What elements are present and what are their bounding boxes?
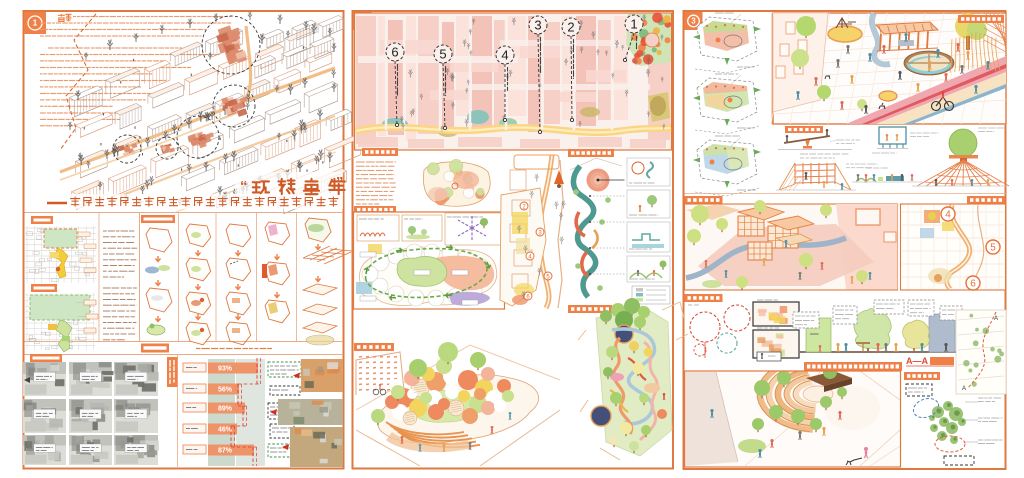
svg-text:3: 3 <box>534 18 541 33</box>
svg-text:89%: 89% <box>218 406 233 413</box>
svg-text:5: 5 <box>439 47 446 62</box>
svg-text:4: 4 <box>501 48 508 63</box>
svg-text:4: 4 <box>945 210 951 221</box>
svg-text:87%: 87% <box>218 448 233 455</box>
svg-text:6: 6 <box>391 45 398 60</box>
svg-text:6: 6 <box>970 279 976 290</box>
svg-text:”: ” <box>336 174 344 191</box>
svg-text:3: 3 <box>691 17 696 26</box>
svg-text:56%: 56% <box>218 387 233 394</box>
svg-text:“: “ <box>240 178 248 195</box>
svg-text:2: 2 <box>567 20 574 35</box>
svg-text:A: A <box>994 316 998 322</box>
svg-text:1: 1 <box>630 17 637 32</box>
svg-text:93%: 93% <box>218 366 233 373</box>
svg-text:A: A <box>962 386 966 392</box>
svg-text:A—A: A—A <box>906 356 928 366</box>
svg-text:5: 5 <box>990 243 996 254</box>
svg-text:1: 1 <box>33 19 38 28</box>
